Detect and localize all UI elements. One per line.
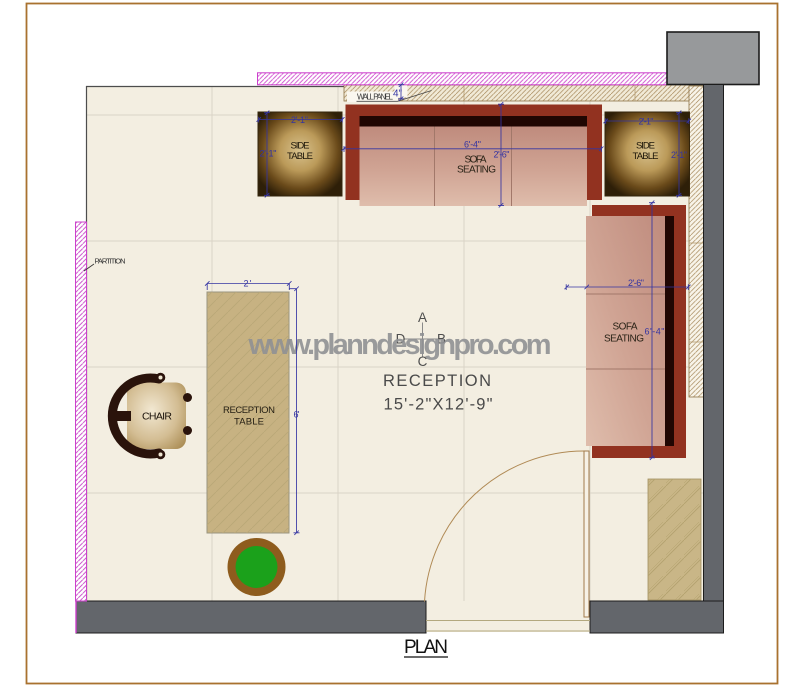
svg-text:2'-1": 2'-1"	[639, 116, 654, 126]
svg-text:TABLE: TABLE	[234, 417, 264, 428]
svg-text:PLAN: PLAN	[404, 637, 448, 658]
svg-text:www.planndesignpro.com: www.planndesignpro.com	[248, 329, 552, 361]
svg-text:2'-1": 2'-1"	[671, 150, 687, 160]
svg-text:2'-1": 2'-1"	[260, 149, 277, 159]
svg-text:6'-4": 6'-4"	[464, 140, 481, 150]
svg-text:RECEPTION: RECEPTION	[223, 405, 275, 416]
svg-text:6': 6'	[294, 410, 300, 420]
svg-text:2'-6": 2'-6"	[628, 278, 644, 288]
svg-text:2': 2'	[244, 278, 252, 288]
svg-text:2'-1": 2'-1"	[291, 115, 308, 125]
svg-text:WALL PANEL: WALL PANEL	[357, 93, 394, 102]
svg-text:SIDE: SIDE	[636, 141, 655, 152]
svg-text:SOFA: SOFA	[613, 322, 638, 333]
svg-text:6'-4": 6'-4"	[645, 327, 665, 337]
svg-text:2'-6": 2'-6"	[494, 150, 510, 160]
svg-text:A: A	[418, 310, 427, 325]
svg-text:4": 4"	[393, 88, 402, 99]
svg-text:SEATING: SEATING	[604, 334, 644, 345]
svg-text:TABLE: TABLE	[633, 151, 659, 162]
svg-text:CHAIR: CHAIR	[142, 411, 172, 423]
svg-text:RECEPTION: RECEPTION	[383, 372, 491, 390]
svg-text:TABLE: TABLE	[287, 151, 313, 162]
svg-text:SEATING: SEATING	[457, 165, 496, 176]
svg-text:SIDE: SIDE	[291, 141, 310, 152]
svg-text:PARTITION: PARTITION	[95, 257, 126, 266]
svg-text:15'-2"X12'-9": 15'-2"X12'-9"	[384, 396, 493, 414]
